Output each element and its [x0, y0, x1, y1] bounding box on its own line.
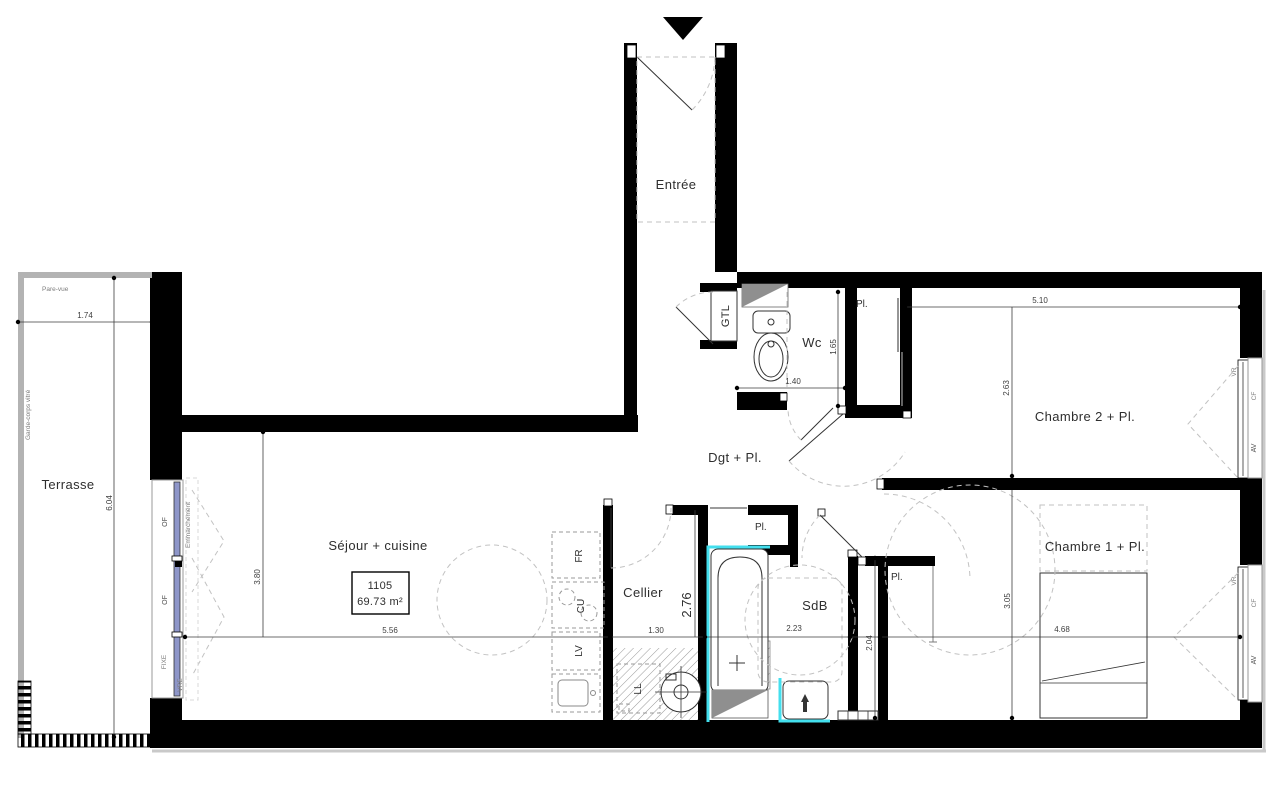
window-fixe-label: FIXE	[161, 654, 168, 669]
gtl-niche: GTL	[711, 291, 737, 341]
window-av-label: AV	[1251, 655, 1258, 664]
dim-sdb-height: 2.04	[865, 635, 874, 651]
washing-machine-label: LL	[633, 683, 644, 695]
duct-shaft-sdb	[712, 690, 768, 718]
sdb-label: SdB	[802, 598, 828, 613]
window-vr-label: VR	[1231, 576, 1238, 585]
dim-cellier-width: 1.30	[648, 626, 664, 635]
dim-wc-width: 1.40	[785, 377, 801, 386]
bed	[1040, 505, 1147, 718]
dim-sejour-height: 3.80	[253, 569, 262, 585]
floor-plan: Pare-vue Garde-corps vitré Terrasse OF O…	[0, 0, 1279, 787]
garde-corps-label: Garde-corps vitré	[25, 389, 32, 440]
kitchen-appliances: FR CU LV	[552, 532, 604, 712]
cellier-label: Cellier	[623, 585, 663, 600]
dim-chambre2-height: 2.63	[1002, 380, 1011, 396]
floor-plan-page: Pare-vue Garde-corps vitré Terrasse OF O…	[0, 0, 1279, 787]
terrace: Pare-vue Garde-corps vitré Terrasse	[18, 272, 152, 747]
window-cf-label: CF	[1251, 599, 1258, 608]
dim-chambre1-height: 3.05	[1003, 593, 1012, 609]
unit-number: 1105	[368, 580, 393, 592]
pare-vue-screen	[18, 272, 152, 278]
chambre1-label: Chambre 1 + Pl.	[1045, 539, 1145, 554]
terrace-edge-strip-left	[18, 681, 31, 734]
washbasin	[780, 678, 830, 721]
terrace-edge-strip-bottom	[18, 734, 152, 747]
emmarchement-label: Emmarchement	[185, 502, 192, 548]
window-av-label: AV	[1251, 443, 1258, 452]
dishwasher-label: LV	[574, 645, 585, 657]
fridge-label: FR	[574, 549, 585, 562]
unit-info-box: 1105 69.73 m²	[352, 572, 409, 614]
cooktop-label: CU	[576, 599, 587, 613]
dim-cellier-height: 2.76	[679, 592, 694, 617]
dim-terrasse-width: 1.74	[77, 311, 93, 320]
window-of-label-2: OF	[162, 595, 169, 605]
towel-radiator	[838, 711, 878, 720]
dim-sejour-width: 5.56	[382, 626, 398, 635]
toilet	[753, 311, 790, 381]
pare-vue-label: Pare-vue	[42, 286, 69, 293]
pl-chambre1-label: Pl.	[891, 572, 903, 583]
sejour-label: Séjour + cuisine	[328, 538, 427, 553]
window-chambre2: VR CF AV	[1188, 358, 1262, 478]
window-vr-label: VR	[1231, 367, 1238, 376]
dim-sdb-width: 2.23	[786, 624, 802, 633]
doors	[611, 57, 1055, 655]
dgt-label: Dgt + Pl.	[708, 450, 762, 465]
dim-terrasse-height: 6.04	[105, 495, 114, 511]
window-vre-label: VRE	[177, 678, 184, 692]
unit-area: 69.73 m²	[357, 596, 403, 608]
wc-label: Wc	[802, 335, 822, 350]
duct-shaft-wc	[742, 284, 788, 307]
pl-cellier-label: Pl.	[755, 522, 767, 533]
pl-wc-label: Pl.	[856, 299, 868, 310]
terrasse-label: Terrasse	[41, 477, 94, 492]
glass-guardrail	[18, 272, 24, 738]
entree-label: Entrée	[656, 177, 697, 192]
chambre2-label: Chambre 2 + Pl.	[1035, 409, 1135, 424]
bay-window: OF OF FIXE VRE Emmarchement	[152, 478, 224, 700]
window-of-label-1: OF	[162, 517, 169, 527]
dim-chambre2-width: 5.10	[1032, 296, 1048, 305]
window-chambre1: VR CF AV	[1174, 565, 1262, 702]
dim-wc-height: 1.65	[829, 339, 838, 355]
window-cf-label: CF	[1251, 392, 1258, 401]
gtl-label: GTL	[720, 305, 732, 327]
dim-chambre1-width: 4.68	[1054, 625, 1070, 634]
entrance-arrow-icon	[663, 17, 703, 40]
